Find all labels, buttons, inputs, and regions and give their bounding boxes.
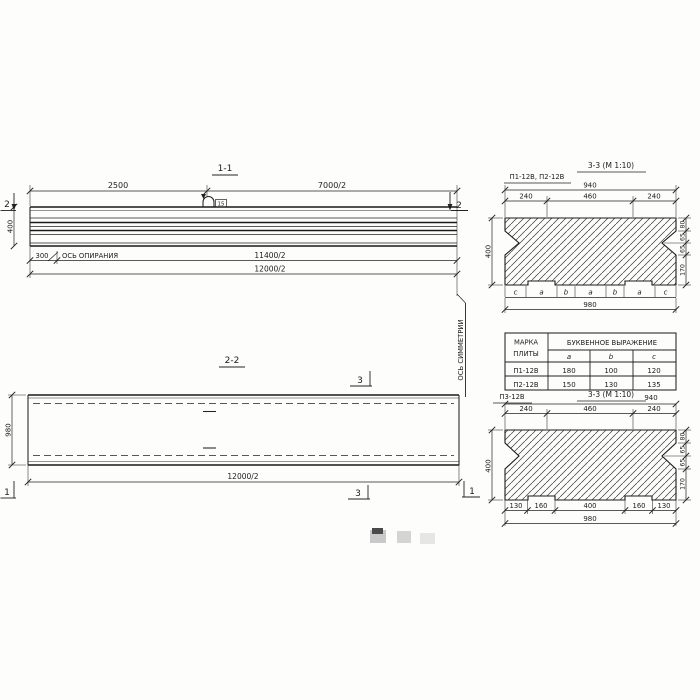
section-a-hatched-body — [505, 218, 676, 285]
svg-text:a: a — [588, 289, 592, 297]
svg-text:170: 170 — [680, 264, 687, 276]
table-header-mark-line1: МАРКА — [514, 339, 538, 347]
cross-section-a: 3-3 (М 1:10) П1-12В, П2-12В 940 240 460 … — [485, 161, 692, 313]
section-marker-1-left: 1 — [1, 481, 17, 498]
svg-text:П2-12В: П2-12В — [513, 381, 539, 389]
section-a-left-dimension: 400 — [485, 215, 504, 288]
table-col-a: a — [567, 353, 571, 361]
section-a-top-dimensions: 940 240 460 240 — [502, 182, 679, 218]
elevation-title: 1-1 — [218, 164, 233, 174]
svg-text:240: 240 — [647, 193, 660, 201]
marks-table: МАРКА ПЛИТЫ БУКВЕННОЕ ВЫРАЖЕНИЕ a b c П1… — [505, 333, 676, 390]
dim-2500: 2500 — [108, 181, 128, 190]
svg-text:2: 2 — [4, 200, 10, 210]
svg-text:400: 400 — [485, 459, 493, 472]
svg-text:65: 65 — [680, 233, 687, 241]
dim-940-b: 940 — [644, 394, 657, 402]
dim-12000-2-plan: 12000/2 — [227, 472, 258, 481]
plan-2-2: 2-2 3 980 1 — [1, 356, 481, 499]
elevation-1-1: 1-1 2500 7000/2 2 2 — [1, 164, 469, 296]
svg-text:b: b — [564, 289, 569, 297]
dim-980-b: 980 — [583, 515, 596, 523]
dim-400: 400 — [7, 220, 15, 233]
svg-text:65: 65 — [680, 245, 687, 253]
section-marker-1-right: 1 — [462, 481, 480, 497]
svg-text:150: 150 — [562, 381, 575, 389]
section-a-letter-row: c a b a b a c — [505, 286, 676, 298]
plan-outline — [28, 395, 459, 465]
svg-text:b: b — [613, 289, 618, 297]
section-a-bottom-dimension: 980 — [502, 298, 679, 313]
plan-title: 2-2 — [225, 356, 240, 366]
loop-arrow-icon — [201, 194, 206, 199]
svg-text:3: 3 — [357, 376, 363, 386]
dim-12000-2: 12000/2 — [254, 265, 285, 274]
section-b-title: 3-3 (М 1:10) — [588, 390, 634, 399]
table-header-expression: БУКВЕННОЕ ВЫРАЖЕНИЕ — [567, 339, 657, 347]
dim-7000-2: 7000/2 — [318, 181, 346, 190]
support-axis-label: ОСЬ ОПИРАНИЯ — [62, 252, 118, 260]
table-row-p1: П1-12В 180 100 120 — [513, 367, 660, 375]
plan-bottom-dimension: 12000/2 — [25, 465, 462, 486]
section-a-title: 3-3 (М 1:10) — [588, 161, 634, 170]
svg-text:130: 130 — [658, 502, 671, 510]
symmetry-axis: ОСЬ СИММЕТРИИ — [457, 294, 466, 436]
svg-text:c: c — [514, 289, 518, 297]
blueprint-canvas: 1-1 2500 7000/2 2 2 — [0, 0, 700, 700]
svg-text:180: 180 — [562, 367, 575, 375]
svg-text:65: 65 — [680, 459, 687, 467]
svg-text:1: 1 — [469, 487, 475, 497]
svg-text:400: 400 — [485, 245, 493, 258]
svg-text:240: 240 — [519, 193, 532, 201]
svg-text:400: 400 — [584, 502, 597, 510]
section-b-left-dimension: 400 — [485, 427, 504, 503]
svg-text:a: a — [539, 289, 543, 297]
svg-text:160: 160 — [633, 502, 646, 510]
dim-11400-2: 11400/2 — [254, 251, 285, 260]
svg-text:460: 460 — [583, 193, 596, 201]
loop-tag: 15 — [218, 202, 225, 208]
cross-section-b: П3-12В 3-3 (М 1:10) 940 240 460 240 — [485, 390, 692, 527]
svg-text:240: 240 — [647, 405, 660, 413]
section-b-bottom-dimensions: 130 160 400 160 130 980 — [502, 500, 679, 527]
section-a-label: П1-12В, П2-12В — [510, 173, 565, 181]
svg-text:П1-12В: П1-12В — [513, 367, 539, 375]
svg-text:65: 65 — [680, 446, 687, 454]
section-b-hatched-body — [505, 430, 676, 500]
beam-body — [30, 207, 457, 246]
svg-text:100: 100 — [604, 367, 617, 375]
svg-text:120: 120 — [647, 367, 660, 375]
svg-text:2: 2 — [456, 201, 462, 211]
svg-text:a: a — [637, 289, 641, 297]
table-col-c: c — [652, 353, 656, 361]
svg-text:c: c — [664, 289, 668, 297]
elevation-bottom-dimensions: 300 ОСЬ ОПИРАНИЯ 11400/2 12000/2 — [27, 246, 460, 278]
svg-text:460: 460 — [583, 405, 596, 413]
svg-text:3: 3 — [355, 489, 361, 499]
svg-text:170: 170 — [680, 478, 687, 490]
elevation-top-dimension: 2500 7000/2 — [27, 181, 460, 296]
table-header-mark-line2: ПЛИТЫ — [513, 350, 538, 358]
section-b-label: П3-12В — [499, 393, 525, 401]
section-marker-3-top: 3 — [350, 371, 372, 386]
section-marker-3-bottom: 3 — [348, 485, 370, 499]
svg-text:1: 1 — [4, 488, 10, 498]
scan-artifacts — [370, 528, 435, 544]
table-row-p2: П2-12В 150 130 135 — [513, 381, 660, 389]
dim-980-a: 980 — [583, 301, 596, 309]
svg-text:130: 130 — [510, 502, 523, 510]
svg-text:80: 80 — [680, 433, 687, 441]
section-b-top-dimensions: 240 460 240 — [502, 401, 679, 429]
svg-text:240: 240 — [519, 405, 532, 413]
dim-940-a: 940 — [583, 182, 596, 190]
svg-text:130: 130 — [604, 381, 617, 389]
lifting-loop: 15 — [201, 194, 227, 208]
svg-text:160: 160 — [535, 502, 548, 510]
symmetry-axis-label: ОСЬ СИММЕТРИИ — [457, 319, 465, 380]
svg-text:135: 135 — [647, 381, 660, 389]
svg-text:80: 80 — [680, 221, 687, 229]
dim-980-plan: 980 — [5, 423, 13, 436]
dim-300: 300 — [36, 252, 49, 260]
section-marker-2-right: 2 — [448, 192, 468, 211]
technical-drawing: 1-1 2500 7000/2 2 2 — [0, 0, 700, 700]
plan-width-dimension: 980 — [5, 392, 27, 468]
table-col-b: b — [609, 353, 614, 361]
